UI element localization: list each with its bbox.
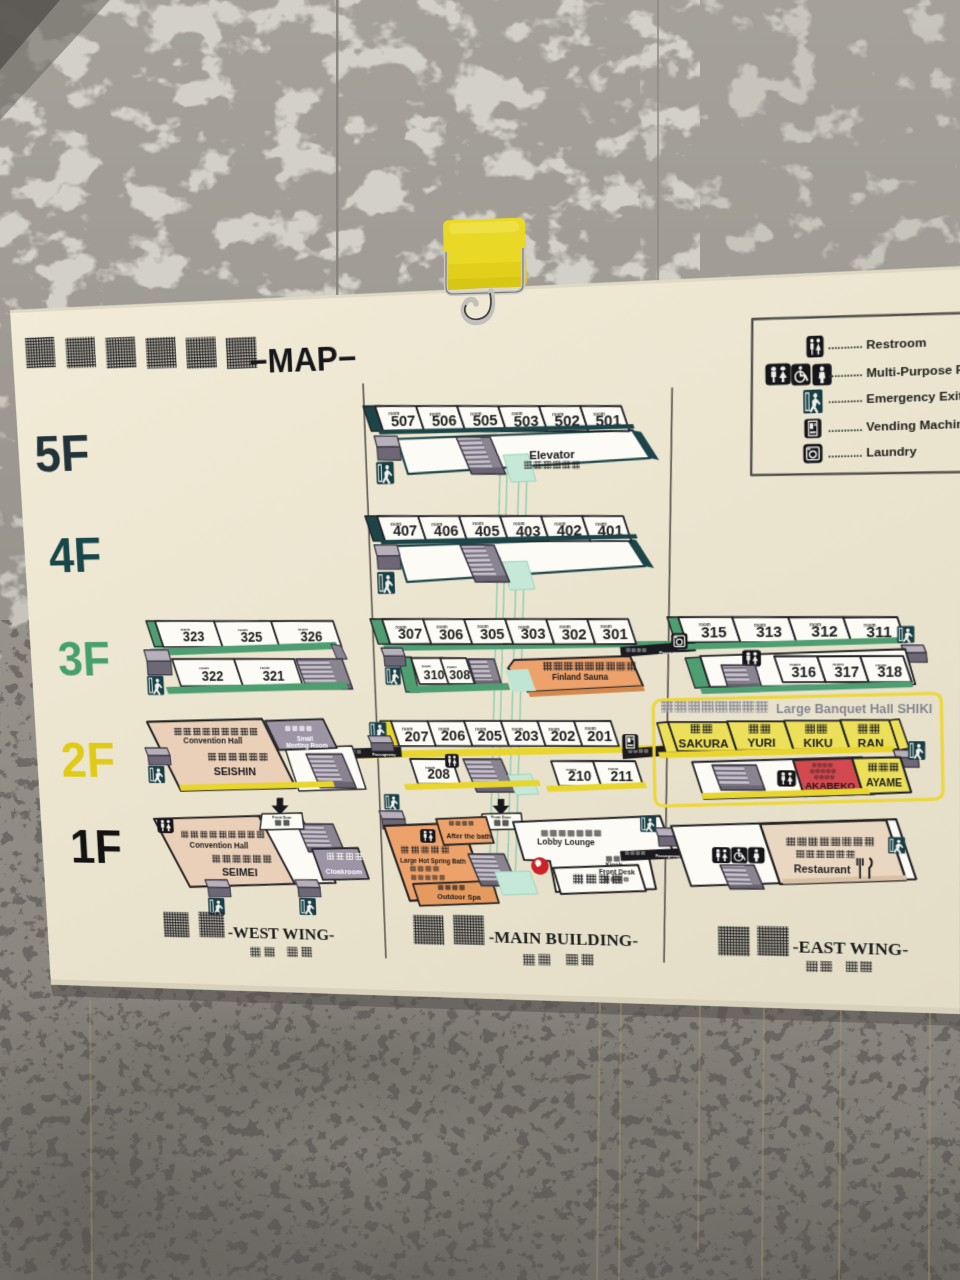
svg-text:306: 306 (439, 626, 464, 643)
svg-text:Cloakroom: Cloakroom (325, 867, 362, 877)
svg-text:307: 307 (398, 626, 423, 643)
svg-text:2F: 2F (60, 733, 117, 788)
svg-text:Front Desk: Front Desk (599, 869, 636, 877)
svg-text:Small: Small (297, 736, 314, 743)
svg-text:507: 507 (391, 413, 416, 431)
svg-text:...........: ........... (828, 339, 863, 353)
svg-text:5F: 5F (33, 424, 91, 483)
svg-text:Passageway: Passageway (655, 853, 681, 859)
svg-text:1F: 1F (69, 822, 124, 874)
svg-text:326: 326 (300, 629, 323, 645)
svg-text:Restroom: Restroom (866, 337, 926, 353)
svg-text:...........: ........... (828, 448, 863, 461)
svg-text:SEIMEI: SEIMEI (222, 867, 258, 879)
svg-text:-WEST WING-: -WEST WING- (227, 923, 335, 944)
svg-text:302: 302 (561, 626, 586, 643)
svg-text:Outdoor Spa: Outdoor Spa (437, 891, 482, 901)
svg-text:506: 506 (432, 413, 457, 431)
svg-text:Finland Sauna: Finland Sauna (552, 673, 609, 683)
svg-text:-EAST WING-: -EAST WING- (792, 937, 908, 960)
svg-text:Meeting Room: Meeting Room (286, 743, 329, 750)
svg-text:Kiosk: Kiosk (606, 862, 624, 868)
svg-text:317: 317 (834, 664, 859, 680)
svg-text:318: 318 (877, 664, 903, 680)
svg-text:310: 310 (423, 667, 444, 682)
svg-text:208: 208 (427, 767, 450, 782)
svg-text:321: 321 (262, 668, 285, 683)
svg-text:301: 301 (602, 626, 628, 643)
svg-text:201: 201 (587, 729, 612, 746)
svg-text:Front Door: Front Door (491, 816, 512, 820)
svg-text:Emergency Exit: Emergency Exit (866, 390, 960, 407)
svg-text:4F: 4F (47, 529, 102, 583)
svg-text:203: 203 (514, 729, 539, 746)
svg-text:211: 211 (610, 768, 633, 784)
svg-text:-MAIN BUILDING-: -MAIN BUILDING- (488, 927, 638, 950)
svg-text:Vending Machine: Vending Machine (866, 418, 960, 435)
svg-text:Convention Hall: Convention Hall (189, 841, 248, 851)
svg-text:206: 206 (441, 729, 466, 745)
svg-text:Restaurant: Restaurant (794, 864, 852, 877)
svg-text:305: 305 (480, 626, 505, 643)
svg-text:315: 315 (701, 624, 727, 641)
svg-text:316: 316 (791, 664, 816, 680)
svg-text:...........: ........... (828, 422, 863, 435)
svg-text:312: 312 (811, 624, 838, 642)
svg-text:313: 313 (756, 624, 782, 641)
svg-text:Laundry: Laundry (866, 446, 917, 461)
svg-text:325: 325 (240, 629, 263, 644)
svg-text:−MAP−: −MAP− (248, 338, 357, 380)
svg-text:205: 205 (477, 729, 502, 746)
svg-text:303: 303 (521, 626, 546, 643)
svg-text:...........: ........... (828, 367, 863, 381)
svg-text:Lobby Lounge: Lobby Lounge (537, 837, 595, 847)
svg-text:...........: ........... (828, 394, 863, 407)
svg-text:SAKURA: SAKURA (678, 738, 728, 751)
svg-text:SEISHIN: SEISHIN (214, 766, 257, 778)
svg-text:Large Banquet Hall SHIKI: Large Banquet Hall SHIKI (776, 701, 932, 716)
svg-text:After the bath: After the bath (446, 834, 491, 842)
svg-text:202: 202 (550, 729, 575, 746)
svg-text:407: 407 (393, 523, 418, 540)
svg-text:210: 210 (568, 769, 592, 785)
svg-text:308: 308 (449, 667, 471, 682)
svg-text:Elevator: Elevator (529, 449, 576, 463)
svg-text:Multi-Purpose Restroom: Multi-Purpose Restroom (866, 362, 960, 381)
svg-text:Passageway: Passageway (659, 650, 685, 655)
svg-text:322: 322 (201, 668, 223, 683)
svg-text:Front Door: Front Door (272, 816, 292, 820)
svg-text:AYAME: AYAME (866, 777, 903, 789)
svg-text:406: 406 (434, 523, 459, 540)
svg-text:YURI: YURI (747, 737, 776, 750)
svg-text:Large Hot Spring Bath: Large Hot Spring Bath (400, 857, 466, 865)
svg-text:Convention Hall: Convention Hall (183, 737, 243, 746)
svg-text:Passageway: Passageway (372, 752, 397, 757)
svg-text:207: 207 (404, 729, 429, 745)
svg-text:323: 323 (183, 630, 205, 645)
svg-text:3F: 3F (57, 634, 112, 687)
